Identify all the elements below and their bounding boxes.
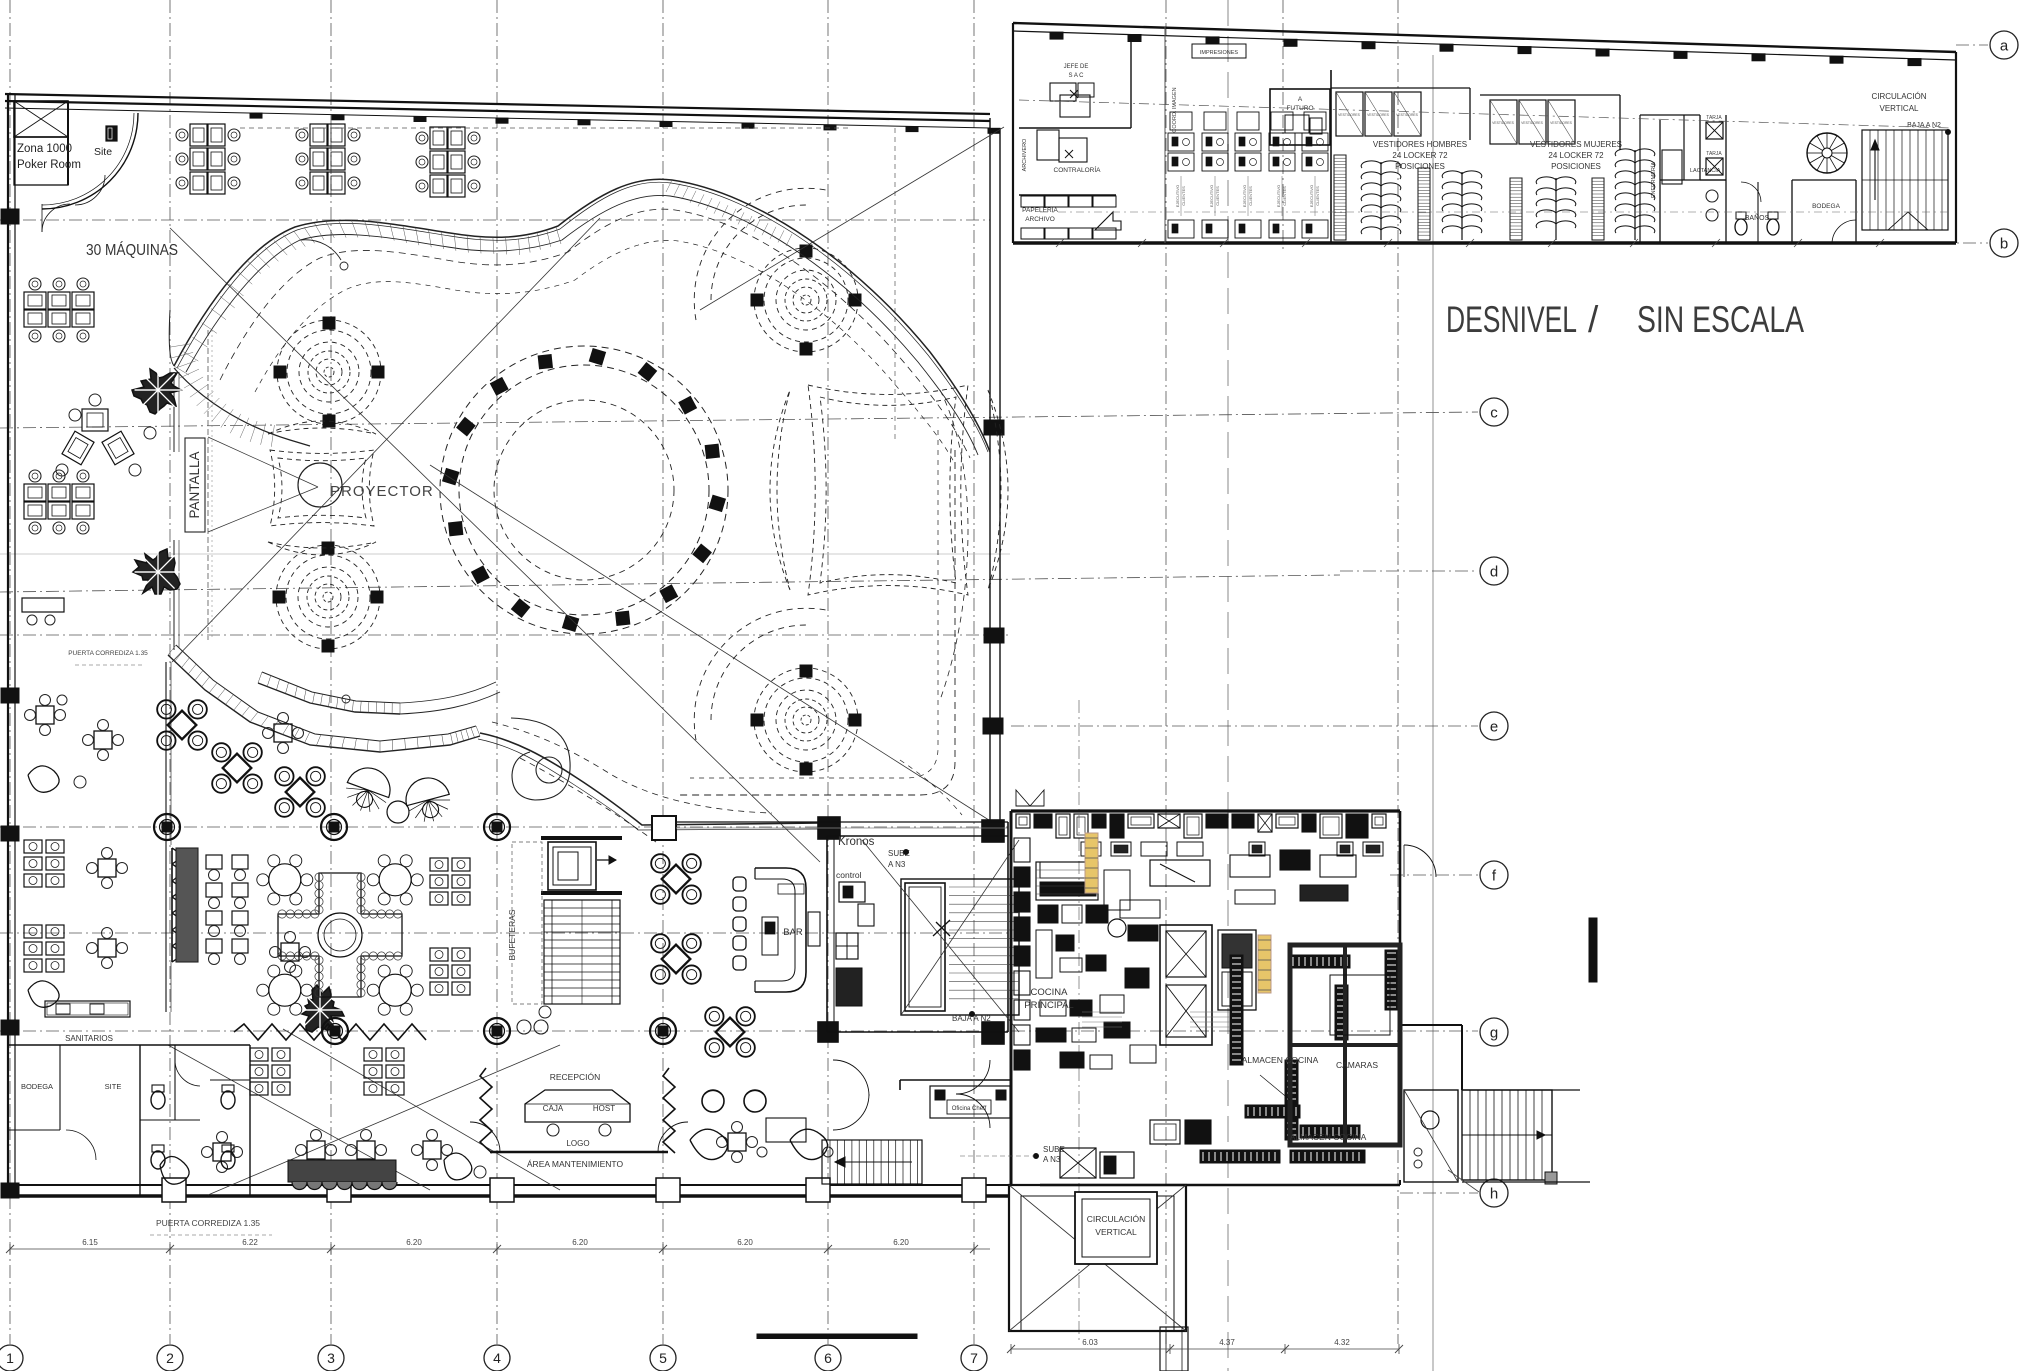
- svg-text:EJECUTIVO: EJECUTIVO: [1309, 185, 1314, 207]
- svg-text:6.20: 6.20: [572, 1238, 588, 1247]
- svg-text:Kronos: Kronos: [838, 836, 875, 848]
- svg-text:PROYECTOR: PROYECTOR: [330, 483, 434, 500]
- svg-text:ENFERMERÍA: ENFERMERÍA: [1650, 162, 1657, 198]
- svg-text:ARCHIVERO: ARCHIVERO: [1022, 138, 1028, 171]
- svg-text:2: 2: [166, 1350, 174, 1366]
- svg-text:LACTANCIA: LACTANCIA: [1690, 168, 1721, 174]
- svg-text:/: /: [1588, 299, 1599, 340]
- svg-text:VESTIDORES HOMBRES: VESTIDORES HOMBRES: [1373, 140, 1467, 149]
- svg-text:IMPRESIONES: IMPRESIONES: [1200, 50, 1239, 56]
- svg-text:CLIENTES: CLIENTES: [1315, 186, 1320, 206]
- svg-text:HOST: HOST: [593, 1104, 615, 1113]
- svg-text:CIRCULACIÓN: CIRCULACIÓN: [1871, 92, 1926, 101]
- svg-text:EJECUTIVO: EJECUTIVO: [1276, 185, 1281, 207]
- svg-text:PAPELERIA: PAPELERIA: [1022, 207, 1058, 214]
- svg-text:PRINCIPAL: PRINCIPAL: [1024, 1000, 1073, 1011]
- svg-text:CÁMARAS: CÁMARAS: [1336, 1060, 1378, 1070]
- svg-text:Poker Room: Poker Room: [17, 159, 81, 171]
- svg-text:VESTIDORES: VESTIDORES: [1492, 121, 1515, 125]
- svg-text:ALMACEN COCINA: ALMACEN COCINA: [1290, 1132, 1367, 1142]
- svg-text:PANTALLA: PANTALLA: [187, 451, 202, 518]
- svg-text:VERTICAL: VERTICAL: [1095, 1227, 1137, 1237]
- svg-text:VESTIDORES: VESTIDORES: [1396, 113, 1419, 117]
- svg-text:5: 5: [659, 1350, 667, 1366]
- svg-text:6.20: 6.20: [737, 1238, 753, 1247]
- svg-text:TARJA: TARJA: [1706, 115, 1722, 121]
- svg-text:6.22: 6.22: [242, 1238, 258, 1247]
- svg-text:b: b: [2000, 235, 2008, 252]
- svg-text:d: d: [1490, 563, 1498, 580]
- svg-text:h: h: [1490, 1185, 1498, 1202]
- svg-text:1: 1: [6, 1350, 14, 1366]
- svg-text:BAR: BAR: [783, 927, 803, 938]
- svg-text:EJECUTIVO: EJECUTIVO: [1242, 185, 1247, 207]
- svg-text:SITE: SITE: [105, 1082, 122, 1091]
- svg-text:ÁREA MANTENIMIENTO: ÁREA MANTENIMIENTO: [527, 1159, 624, 1169]
- svg-text:c: c: [1490, 404, 1498, 421]
- svg-text:control: control: [836, 870, 862, 880]
- svg-text:Zona 1000: Zona 1000: [17, 143, 72, 155]
- svg-text:VERTICAL: VERTICAL: [1880, 104, 1920, 113]
- svg-text:CIRCULACIÓN: CIRCULACIÓN: [1087, 1214, 1146, 1224]
- svg-text:Site: Site: [94, 146, 112, 158]
- svg-text:CLIENTES: CLIENTES: [1282, 186, 1287, 206]
- svg-text:CONTRALORÍA: CONTRALORÍA: [1054, 165, 1102, 174]
- svg-text:LOGO: LOGO: [566, 1139, 589, 1148]
- svg-text:VESTIDORES: VESTIDORES: [1550, 121, 1573, 125]
- svg-text:POSICIONES: POSICIONES: [1395, 162, 1445, 171]
- svg-text:VESTIDORES MUJERES: VESTIDORES MUJERES: [1530, 140, 1622, 149]
- svg-text:RECEPCIÓN: RECEPCIÓN: [550, 1072, 601, 1082]
- svg-text:CLIENTES: CLIENTES: [1248, 186, 1253, 206]
- svg-text:S A C: S A C: [1068, 73, 1084, 79]
- svg-text:PUERTA CORREDIZA 1.35: PUERTA CORREDIZA 1.35: [156, 1218, 260, 1228]
- svg-text:COCINA: COCINA: [1031, 987, 1069, 998]
- svg-text:SIN ESCALA: SIN ESCALA: [1637, 299, 1804, 340]
- svg-text:SUBE: SUBE: [1043, 1145, 1065, 1154]
- svg-text:EJECUTIVO: EJECUTIVO: [1175, 185, 1180, 207]
- svg-text:VESTIDORES: VESTIDORES: [1521, 121, 1544, 125]
- svg-text:SANITARIOS: SANITARIOS: [65, 1034, 113, 1043]
- svg-text:EJECUTIVO: EJECUTIVO: [1209, 185, 1214, 207]
- svg-text:VESTIDORES: VESTIDORES: [1338, 113, 1361, 117]
- svg-text:PUERTA CORREDIZA 1.35: PUERTA CORREDIZA 1.35: [68, 650, 148, 657]
- svg-text:TARJA: TARJA: [1706, 151, 1722, 157]
- svg-text:24 LOCKER 72: 24 LOCKER 72: [1392, 151, 1448, 160]
- svg-text:a: a: [2000, 37, 2009, 54]
- svg-text:ALMACEN COCINA: ALMACEN COCINA: [1242, 1055, 1319, 1065]
- svg-text:A N3: A N3: [1043, 1155, 1061, 1164]
- svg-text:4.37: 4.37: [1219, 1338, 1235, 1347]
- svg-text:COORD. IMAGEN: COORD. IMAGEN: [1172, 87, 1178, 132]
- svg-text:BAÑOS: BAÑOS: [1745, 213, 1770, 222]
- svg-text:6.15: 6.15: [82, 1238, 98, 1247]
- svg-text:A N3: A N3: [888, 860, 906, 869]
- svg-text:e: e: [1490, 718, 1498, 735]
- svg-text:CLIENTES: CLIENTES: [1215, 186, 1220, 206]
- svg-text:24 LOCKER 72: 24 LOCKER 72: [1548, 151, 1604, 160]
- svg-text:6: 6: [824, 1350, 832, 1366]
- svg-text:3: 3: [327, 1350, 335, 1366]
- svg-text:BODEGA: BODEGA: [21, 1082, 53, 1091]
- svg-text:4.32: 4.32: [1334, 1338, 1350, 1347]
- svg-text:VESTIDORES: VESTIDORES: [1367, 113, 1390, 117]
- svg-text:7: 7: [970, 1350, 978, 1366]
- svg-text:6.20: 6.20: [406, 1238, 422, 1247]
- svg-text:CAJA: CAJA: [543, 1104, 564, 1113]
- svg-text:4: 4: [493, 1350, 501, 1366]
- svg-text:g: g: [1490, 1024, 1498, 1041]
- svg-text:CLIENTES: CLIENTES: [1181, 186, 1186, 206]
- svg-text:BODEGA: BODEGA: [1812, 203, 1840, 210]
- svg-text:POSICIONES: POSICIONES: [1551, 162, 1601, 171]
- svg-text:DESNIVEL: DESNIVEL: [1446, 299, 1577, 340]
- svg-text:ARCHIVO: ARCHIVO: [1025, 216, 1055, 223]
- svg-text:JEFE DE: JEFE DE: [1064, 64, 1089, 70]
- svg-text:6.03: 6.03: [1082, 1338, 1098, 1347]
- svg-text:6.20: 6.20: [893, 1238, 909, 1247]
- svg-text:BAJA A N2: BAJA A N2: [1907, 122, 1941, 129]
- svg-text:Oficina Cheff: Oficina Cheff: [952, 1106, 987, 1112]
- svg-text:30 MÁQUINAS: 30 MÁQUINAS: [86, 242, 178, 259]
- svg-text:A: A: [1298, 96, 1303, 103]
